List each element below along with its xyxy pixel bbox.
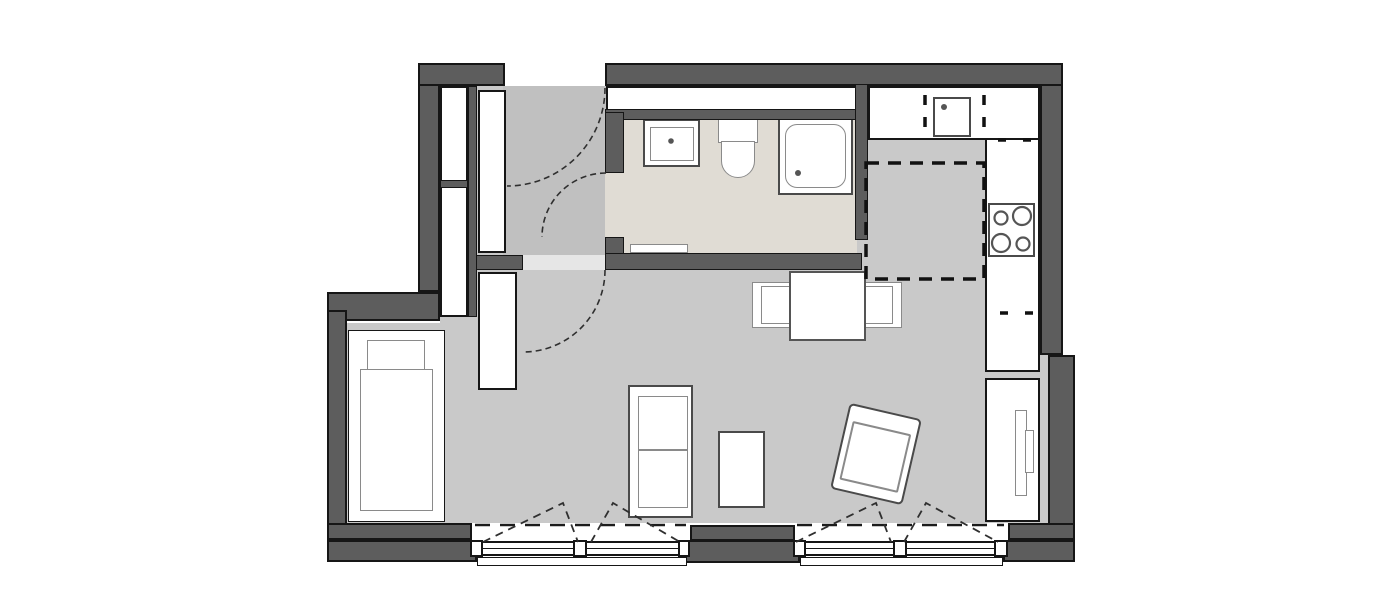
dining-table — [789, 271, 866, 341]
hall-cabinet — [478, 90, 506, 253]
tall-cabinet-handle-small — [1025, 430, 1034, 473]
wall-bottom-right-outer — [1003, 540, 1075, 562]
wall-right-upper — [1040, 63, 1063, 355]
toilet-bowl — [721, 141, 755, 178]
floor-plan — [0, 0, 1400, 600]
armchair-seat — [839, 421, 911, 493]
bathroom-door-threshold — [605, 173, 624, 237]
wall-bottom-left-outer — [327, 540, 477, 562]
wall-bottom-right-inner — [1008, 523, 1075, 540]
bathroom-sink-basin — [650, 127, 694, 161]
window-1-mullion — [573, 540, 587, 557]
wall-kitchen-divider — [855, 84, 868, 240]
window-2-jamb-right — [994, 540, 1008, 557]
cooktop — [988, 203, 1035, 257]
floor-entry-hall — [503, 86, 606, 270]
room-door-threshold — [523, 255, 605, 270]
shower-tray-inner — [785, 124, 846, 188]
shelf-unit-bottom — [638, 450, 688, 508]
wall-bathroom-south — [605, 253, 862, 270]
wall-window-pier-outer — [685, 540, 800, 563]
wall-bottom-left-inner — [327, 523, 472, 540]
stool — [718, 431, 765, 508]
wall-closet-thin — [468, 86, 477, 317]
window-1-jamb-left — [470, 540, 483, 557]
wall-hall-south — [472, 255, 523, 270]
wall-bathroom-west-upper — [605, 112, 624, 173]
toilet-tank — [718, 117, 758, 143]
bed-mattress — [360, 369, 433, 511]
kitchen-sink — [933, 97, 971, 137]
wall-top-right — [605, 63, 1063, 86]
window-2-mullion — [893, 540, 907, 557]
bathroom-radiator — [630, 244, 688, 253]
wardrobe — [478, 272, 517, 390]
hall-closet-lower — [440, 186, 468, 317]
bed-pillow — [367, 340, 425, 371]
window-1-sill — [477, 557, 687, 566]
hall-closet-upper — [440, 86, 468, 182]
window-2-jamb-left — [793, 540, 806, 557]
wall-closet-divider — [440, 180, 468, 188]
shelf-unit-top — [638, 396, 688, 450]
window-2-sill — [800, 557, 1003, 566]
wall-bathroom-north — [605, 109, 860, 120]
wall-left-upper — [418, 63, 440, 292]
wall-window-pier-inner — [690, 525, 795, 541]
window-1-jamb-right — [678, 540, 690, 557]
wall-top-left — [418, 63, 505, 86]
